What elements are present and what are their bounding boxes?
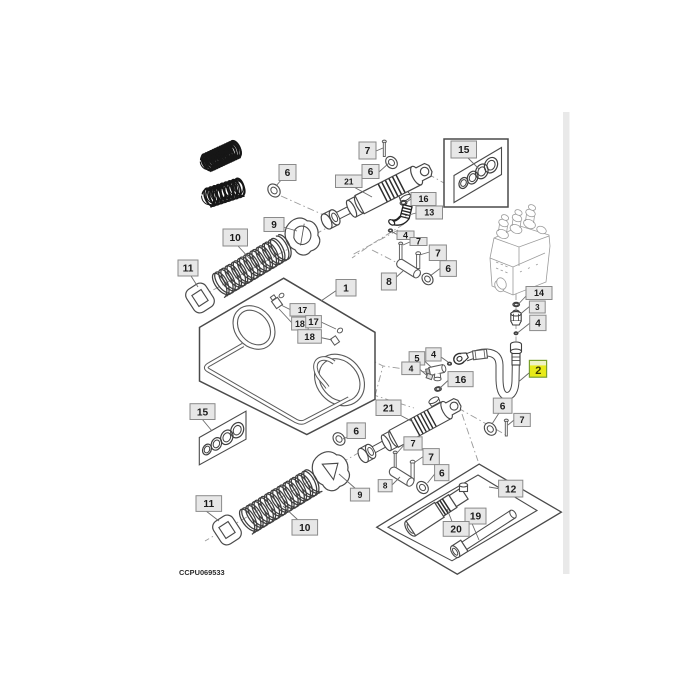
svg-text:16: 16 (455, 375, 467, 386)
svg-text:6: 6 (439, 468, 445, 479)
svg-text:17: 17 (308, 317, 319, 328)
svg-text:18: 18 (295, 319, 305, 329)
svg-text:13: 13 (424, 208, 434, 218)
svg-text:18: 18 (304, 332, 315, 343)
svg-text:10: 10 (230, 233, 242, 244)
svg-text:6: 6 (353, 426, 359, 437)
svg-text:21: 21 (383, 403, 395, 414)
svg-text:3: 3 (535, 303, 540, 312)
svg-text:17: 17 (298, 305, 308, 315)
svg-text:4: 4 (403, 231, 408, 241)
svg-text:15: 15 (458, 145, 470, 156)
svg-text:6: 6 (500, 401, 506, 412)
svg-text:4: 4 (431, 350, 437, 360)
svg-text:11: 11 (183, 264, 194, 275)
svg-text:12: 12 (505, 484, 517, 495)
svg-text:8: 8 (383, 482, 388, 491)
svg-text:6: 6 (285, 168, 291, 179)
svg-text:7: 7 (428, 452, 434, 463)
svg-text:9: 9 (358, 490, 363, 500)
svg-text:9: 9 (271, 220, 277, 231)
svg-text:1: 1 (343, 283, 349, 294)
svg-text:14: 14 (534, 288, 544, 298)
svg-text:20: 20 (450, 525, 462, 536)
svg-text:6: 6 (368, 167, 374, 178)
svg-text:10: 10 (299, 523, 311, 534)
svg-text:7: 7 (365, 146, 371, 157)
svg-text:16: 16 (418, 194, 428, 204)
svg-text:4: 4 (409, 363, 414, 373)
svg-text:7: 7 (519, 415, 524, 425)
svg-text:19: 19 (470, 512, 482, 523)
svg-text:6: 6 (445, 264, 451, 275)
svg-text:2: 2 (535, 365, 541, 377)
svg-text:4: 4 (535, 319, 541, 330)
svg-text:15: 15 (197, 407, 209, 418)
svg-text:7: 7 (435, 248, 441, 259)
svg-text:7: 7 (410, 439, 415, 449)
svg-text:11: 11 (203, 499, 214, 510)
svg-text:21: 21 (344, 176, 354, 186)
svg-text:7: 7 (416, 237, 421, 247)
svg-text:CCPU069533: CCPU069533 (179, 568, 225, 577)
svg-text:8: 8 (386, 277, 392, 288)
